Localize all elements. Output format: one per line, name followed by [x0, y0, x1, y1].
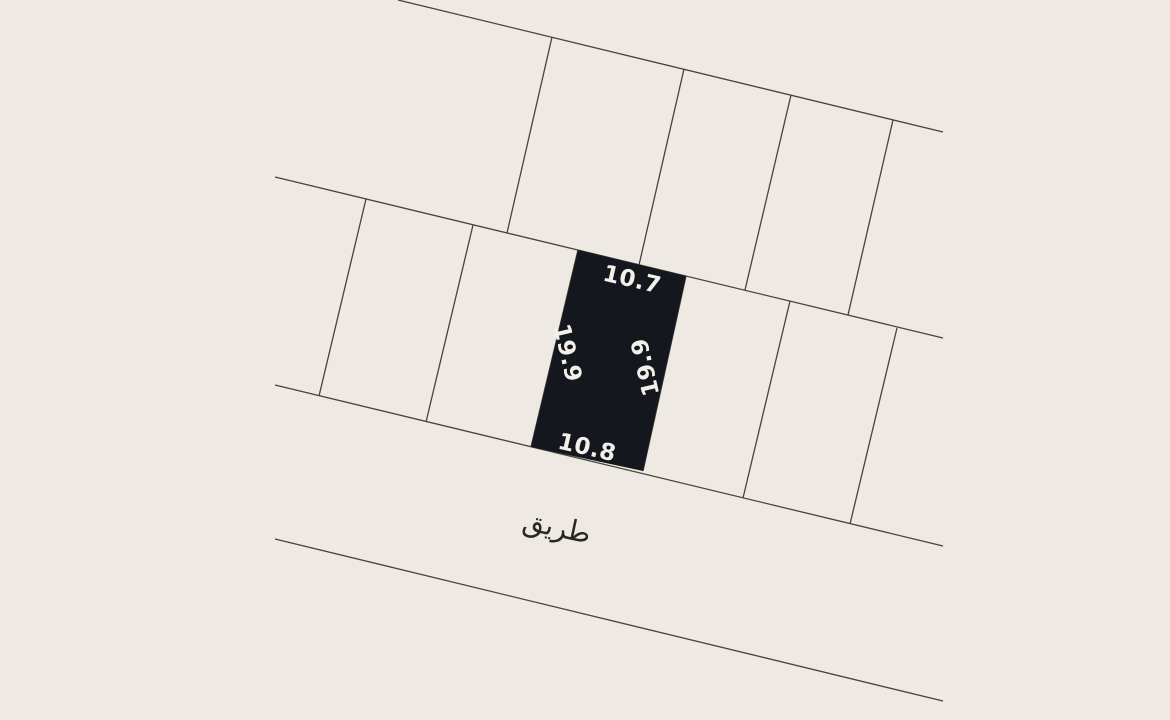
cadastral-plan-canvas: 10.719.919.910.8طريق: [0, 0, 1170, 720]
parcel-map-svg: 10.719.919.910.8طريق: [0, 0, 1170, 720]
